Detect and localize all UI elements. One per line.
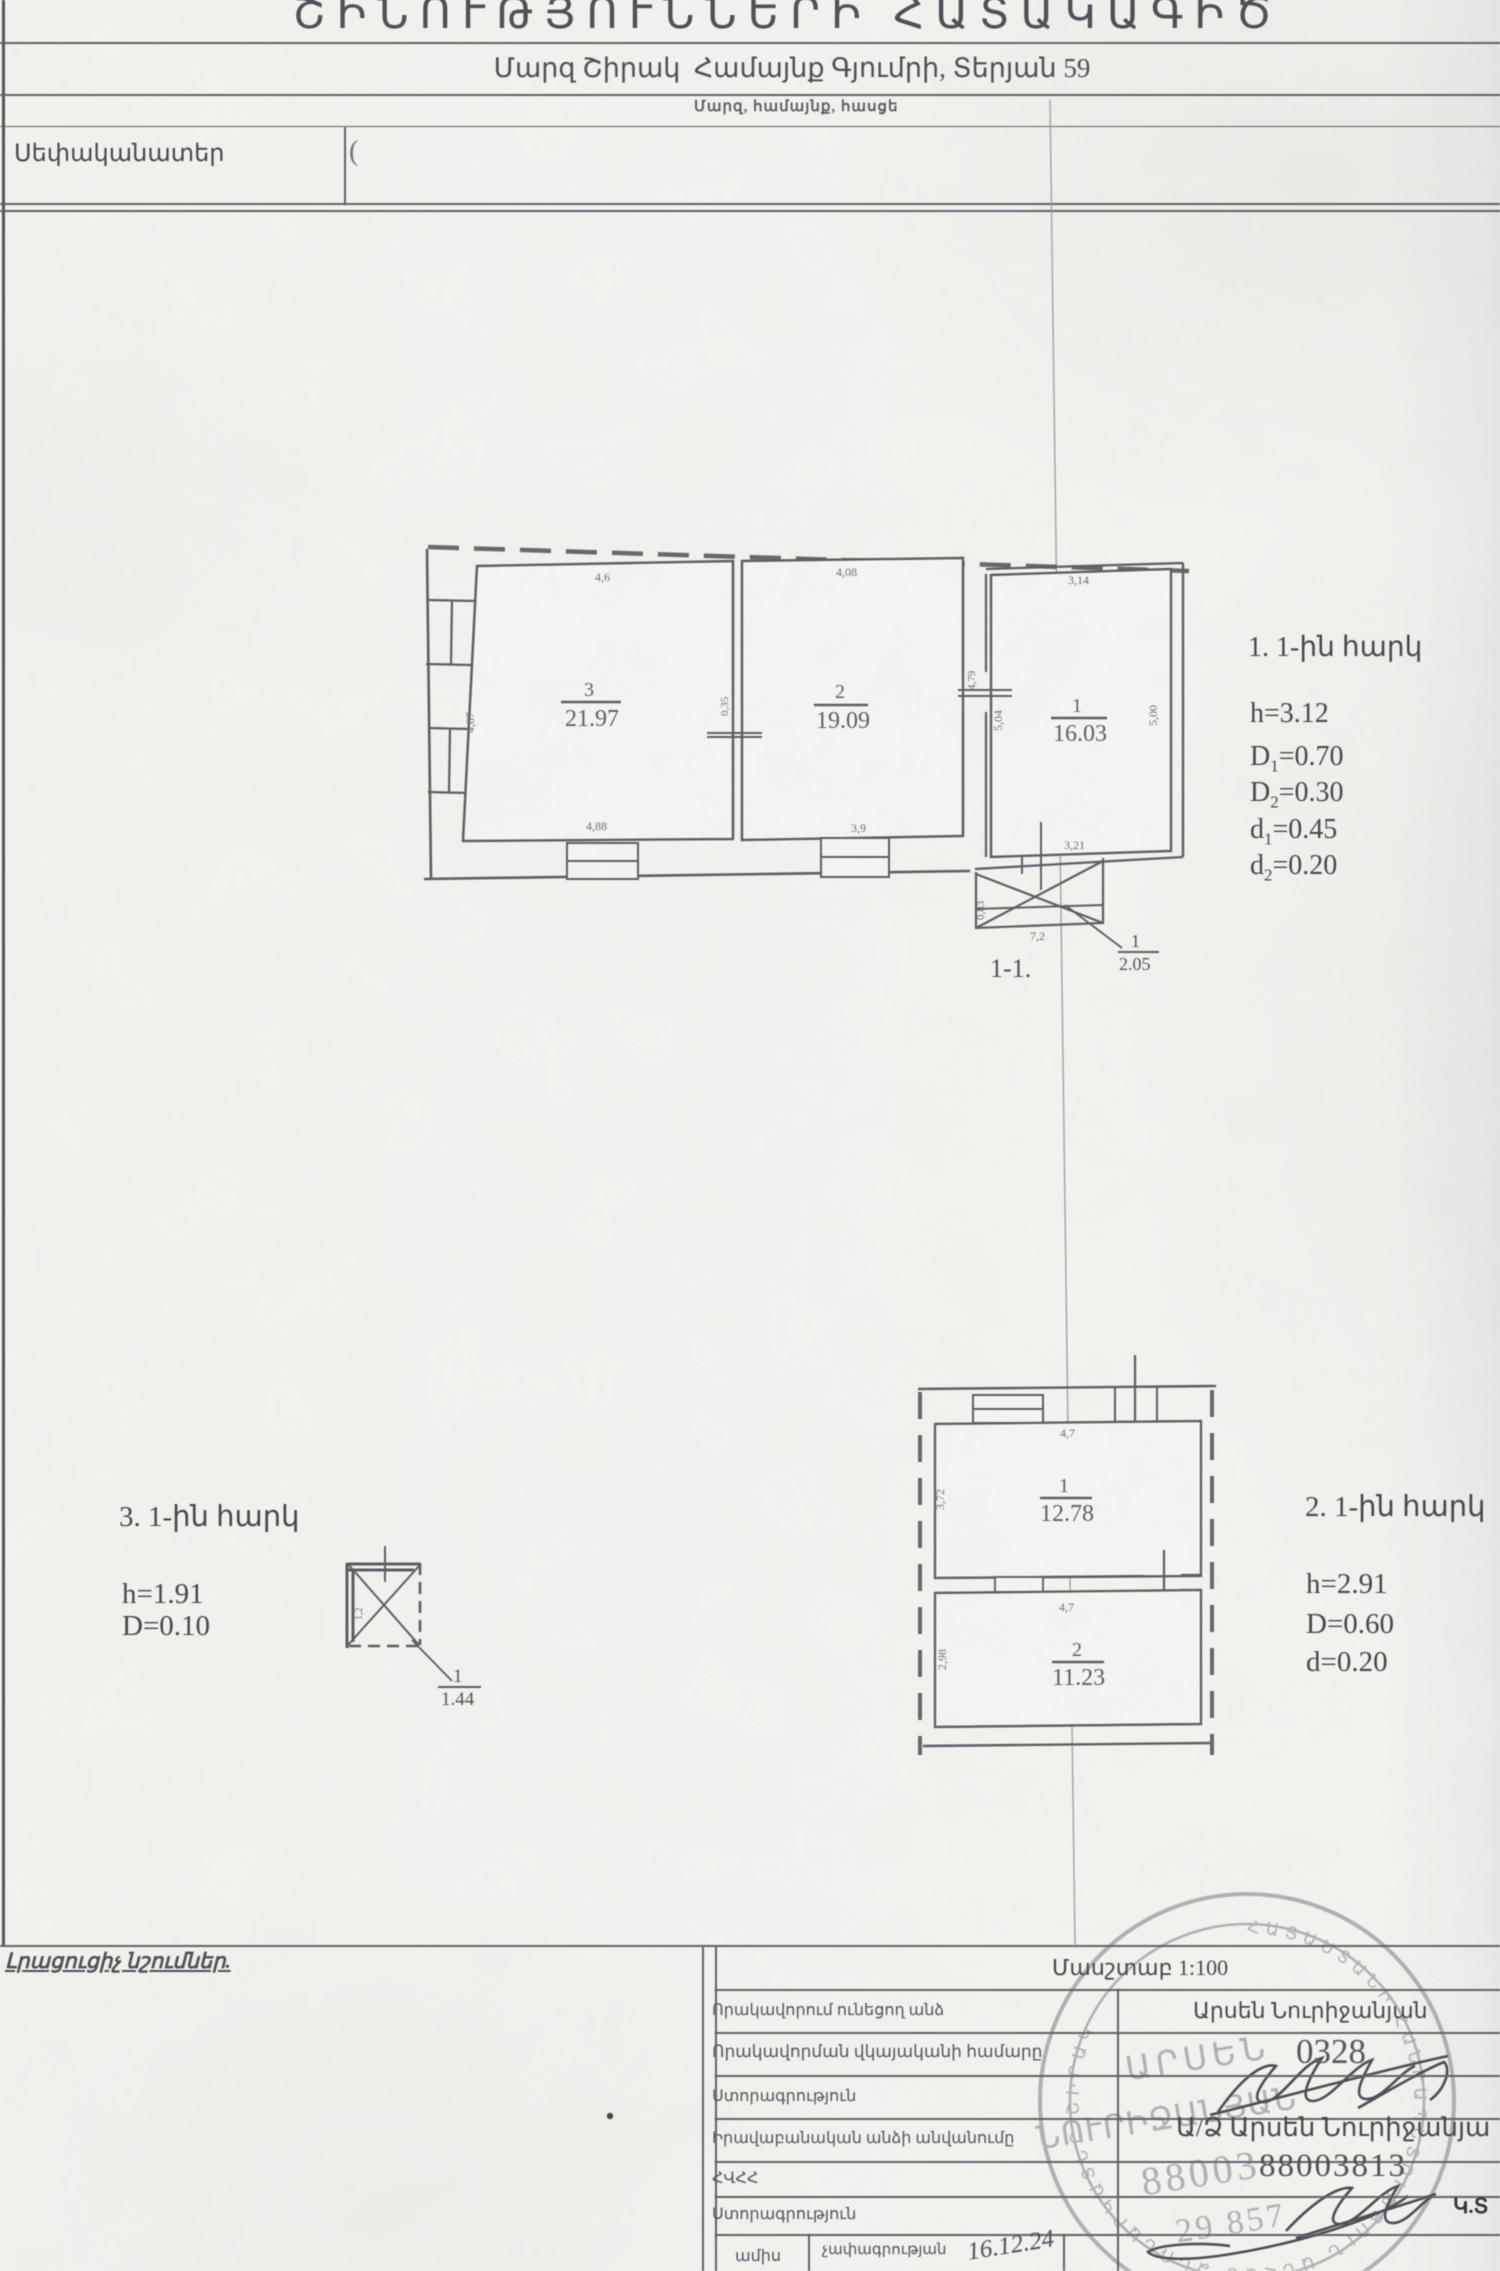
svg-text:ԱՐՍԵՆ: ԱՐՍԵՆ xyxy=(1123,2030,1272,2088)
svg-text:4,6: 4,6 xyxy=(595,570,610,584)
svg-text:5,00: 5,00 xyxy=(1146,705,1160,726)
svg-text:1: 1 xyxy=(453,1666,463,1687)
svg-text:88003: 88003 xyxy=(1138,2141,1264,2204)
svg-text:1-1.: 1-1. xyxy=(990,954,1031,983)
svg-text:12.78: 12.78 xyxy=(1040,1501,1094,1527)
svg-text:19.09: 19.09 xyxy=(816,708,870,734)
svg-text:1: 1 xyxy=(1072,695,1082,717)
svg-text:29 857: 29 857 xyxy=(1173,2197,1289,2251)
svg-text:2: 2 xyxy=(1072,1639,1082,1661)
svg-text:0,35: 0,35 xyxy=(719,696,731,716)
svg-text:3,72: 3,72 xyxy=(933,1489,947,1510)
svg-text:1.44: 1.44 xyxy=(441,1689,475,1710)
svg-text:2: 2 xyxy=(835,681,845,703)
svg-text:3,9: 3,9 xyxy=(851,821,866,835)
svg-text:2,98: 2,98 xyxy=(935,1649,949,1670)
svg-text:4,7: 4,7 xyxy=(1059,1600,1074,1614)
svg-text:2.05: 2.05 xyxy=(1119,954,1151,974)
svg-text:21.97: 21.97 xyxy=(565,706,619,732)
svg-text:1: 1 xyxy=(1131,931,1140,951)
svg-text:11.23: 11.23 xyxy=(1052,1665,1105,1691)
svg-text:4,08: 4,08 xyxy=(836,565,857,579)
svg-text:3: 3 xyxy=(584,679,594,701)
svg-text:1,2: 1,2 xyxy=(354,1608,365,1621)
svg-text:4,88: 4,88 xyxy=(586,819,607,833)
svg-text:1: 1 xyxy=(1059,1475,1069,1497)
svg-text:5,04: 5,04 xyxy=(991,710,1005,731)
svg-text:4,7: 4,7 xyxy=(1060,1426,1075,1440)
svg-text:16.03: 16.03 xyxy=(1053,721,1107,747)
svg-text:0,83: 0,83 xyxy=(975,900,987,920)
svg-text:7,2: 7,2 xyxy=(1030,929,1045,943)
svg-text:3,14: 3,14 xyxy=(1068,573,1089,587)
svg-text:4,79: 4,79 xyxy=(966,670,978,690)
svg-text:4,87: 4,87 xyxy=(463,712,477,733)
svg-text:3,21: 3,21 xyxy=(1064,838,1085,852)
